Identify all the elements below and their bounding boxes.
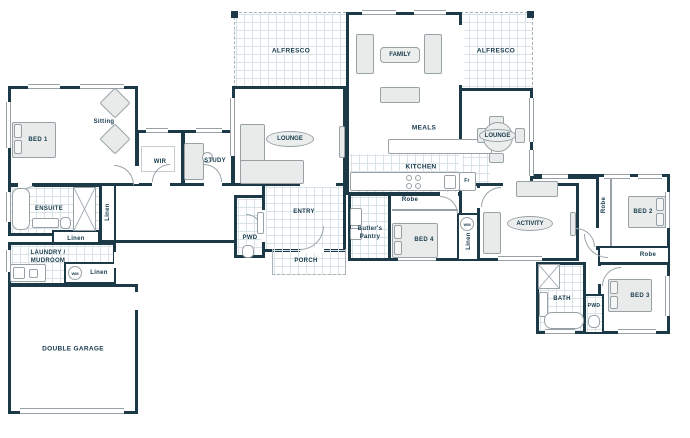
butlers-label-line1: Butler's — [358, 226, 383, 232]
tv-unit — [339, 126, 345, 158]
entry-label: ENTRY — [293, 209, 315, 215]
window — [618, 329, 656, 334]
pillow — [14, 140, 22, 154]
robe-label: Robe — [640, 252, 656, 258]
family-label: FAMILY — [389, 52, 410, 58]
kitchen-sink — [444, 175, 456, 189]
robe-slider — [392, 209, 458, 211]
fridge-label: Fr — [464, 178, 470, 184]
pillow — [394, 241, 402, 255]
door-arc — [584, 234, 608, 258]
garage-door — [20, 408, 124, 414]
alfresco-post — [231, 11, 238, 18]
window — [665, 276, 670, 316]
window — [638, 174, 662, 179]
wm-label: WM — [463, 222, 470, 227]
laundry-label-line1: LAUNDRY / — [30, 250, 65, 256]
garage-label: DOUBLE GARAGE — [42, 346, 104, 353]
toilet — [588, 315, 600, 328]
laundry-tub — [29, 269, 38, 278]
window — [230, 98, 235, 156]
window — [362, 10, 396, 15]
opening — [204, 182, 222, 187]
window — [146, 128, 168, 133]
wir-label: WIR — [154, 159, 167, 165]
opening — [114, 252, 119, 268]
bathtub — [544, 312, 584, 329]
pillow — [14, 124, 22, 138]
bathtub — [12, 188, 30, 230]
alfresco-post — [527, 11, 534, 18]
opening — [152, 182, 170, 187]
bed3-label: BED 3 — [630, 293, 649, 299]
shower — [73, 187, 96, 231]
porch-label: PORCH — [294, 258, 317, 264]
activity-label: ACTIVITY — [516, 221, 543, 227]
opening — [300, 182, 336, 187]
laundry-label-line2: MUDROOM — [31, 258, 65, 264]
robe-slider — [610, 178, 612, 246]
dining-chair — [515, 128, 525, 143]
room-pwd-rear — [584, 294, 604, 334]
tv-unit — [570, 212, 576, 236]
opening — [457, 25, 464, 85]
vanity — [257, 212, 264, 234]
window — [529, 150, 534, 176]
pwd-label: PWD — [243, 235, 258, 241]
window — [6, 192, 11, 222]
floor-plan: WM WM LOUNGE FAMILY L — [0, 0, 690, 438]
toilet — [242, 245, 254, 258]
window — [414, 10, 446, 15]
lounge-rug-label: LOUNGE — [266, 131, 314, 147]
window — [529, 98, 534, 142]
window — [80, 84, 124, 89]
family-table-label: FAMILY — [380, 47, 420, 63]
robe-label: Robe — [601, 197, 607, 213]
washing-machine: WM — [460, 217, 474, 231]
cooktop-burner — [415, 175, 421, 181]
opening — [134, 166, 139, 184]
hall-south-wall — [114, 240, 238, 243]
meals-label: MEALS — [412, 125, 436, 132]
activity-rug-label: ACTIVITY — [507, 216, 553, 231]
pillow — [394, 225, 402, 239]
pantry-bench — [350, 208, 362, 226]
sitting-label: Sitting — [94, 119, 115, 125]
ensuite-label: ENSUITE — [35, 206, 63, 212]
study-desk — [184, 143, 204, 180]
lounge-label: LOUNGE — [277, 136, 303, 142]
window — [28, 84, 60, 89]
window — [542, 174, 568, 179]
washing-machine: WM — [68, 266, 82, 280]
robe-label: Robe — [402, 197, 418, 203]
dining-lounge-label: LOUNGE — [479, 129, 516, 142]
pillow — [656, 198, 664, 211]
bed2-label: BED 2 — [633, 209, 652, 215]
family-sofa — [380, 87, 420, 103]
linen-label: Linen — [67, 236, 85, 242]
opening — [135, 292, 140, 310]
bath-label: BATH — [553, 296, 570, 302]
pwd-label: PWD — [588, 303, 601, 309]
activity-sofa — [516, 181, 558, 197]
window — [604, 174, 630, 179]
wm-label: WM — [71, 271, 78, 276]
window — [196, 128, 222, 133]
shower — [538, 264, 560, 289]
cooktop-burner — [406, 175, 412, 181]
cooktop-burner — [415, 183, 421, 189]
kitchen-label: KITCHEN — [406, 164, 437, 171]
study-label: STUDY — [204, 158, 226, 164]
cooktop-burner — [406, 183, 412, 189]
linen-label: Linen — [90, 270, 108, 276]
laundry-sink — [13, 267, 25, 279]
toilet — [60, 217, 71, 229]
dining-chair — [489, 153, 504, 163]
window — [6, 102, 11, 148]
bed4-label: BED 4 — [414, 237, 433, 243]
alfresco-label: ALFRESCO — [477, 48, 515, 55]
linen-label: Linen — [105, 203, 111, 221]
pillow — [656, 213, 664, 226]
vanity — [32, 218, 59, 228]
butlers-label-line2: Pantry — [360, 234, 380, 240]
linen-label: Linen — [466, 232, 472, 250]
family-sofa — [356, 34, 374, 74]
lounge-label: LOUNGE — [485, 133, 511, 139]
family-sofa — [424, 34, 442, 74]
pillow — [610, 296, 618, 309]
alfresco-label: ALFRESCO — [272, 48, 310, 55]
activity-sofa — [483, 212, 501, 254]
bed1-label: BED 1 — [28, 137, 47, 143]
pillow — [610, 281, 618, 294]
lounge-sofa-horizontal — [240, 160, 304, 184]
window — [498, 256, 542, 261]
window — [545, 329, 575, 334]
